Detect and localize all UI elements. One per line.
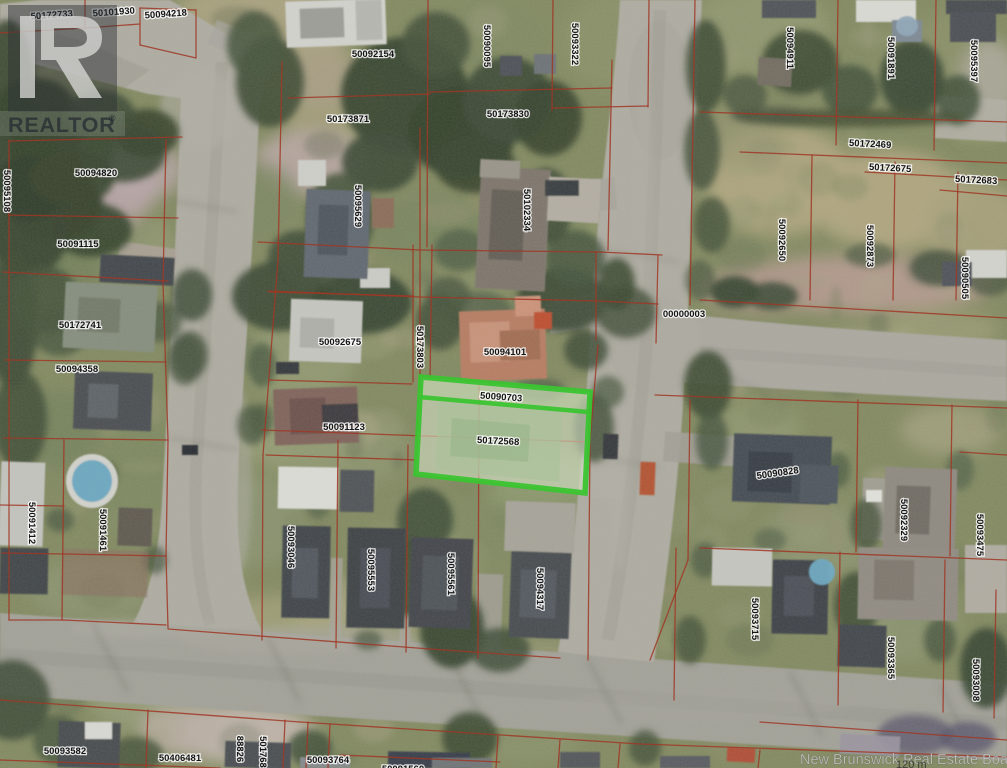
svg-text:50173830: 50173830: [487, 109, 529, 120]
svg-text:50091115: 50091115: [57, 239, 99, 250]
svg-text:50090095: 50090095: [481, 25, 492, 68]
svg-text:50093475: 50093475: [974, 514, 985, 557]
svg-text:50093008: 50093008: [970, 659, 981, 701]
svg-text:50094317: 50094317: [534, 568, 545, 610]
svg-text:00000003: 00000003: [663, 309, 705, 320]
svg-text:50172568: 50172568: [477, 435, 520, 448]
svg-text:50094911: 50094911: [784, 27, 795, 69]
svg-text:50095561: 50095561: [445, 553, 456, 596]
svg-text:50095108: 50095108: [1, 170, 12, 212]
svg-text:50091891: 50091891: [885, 37, 896, 80]
svg-text:50091560: 50091560: [382, 764, 424, 768]
svg-text:50173871: 50173871: [327, 114, 370, 125]
svg-text:501768: 501768: [257, 736, 268, 768]
svg-text:50094101: 50094101: [484, 347, 527, 358]
svg-text:120 m: 120 m: [896, 759, 927, 768]
svg-text:88826: 88826: [234, 736, 245, 762]
svg-text:50406481: 50406481: [159, 753, 202, 764]
svg-text:50092154: 50092154: [352, 49, 395, 60]
svg-text:50172741: 50172741: [59, 320, 102, 331]
svg-text:50172675: 50172675: [869, 162, 913, 175]
svg-text:50092873: 50092873: [864, 225, 875, 267]
svg-text:50092650: 50092650: [776, 219, 787, 261]
svg-text:50091461: 50091461: [97, 509, 108, 552]
svg-text:50093715: 50093715: [749, 598, 760, 641]
svg-text:50172683: 50172683: [955, 174, 998, 187]
svg-text:50095629: 50095629: [352, 185, 363, 227]
svg-text:50092675: 50092675: [319, 337, 362, 348]
svg-text:50095397: 50095397: [968, 40, 979, 82]
svg-text:50093365: 50093365: [885, 637, 896, 680]
svg-text:50102334: 50102334: [521, 189, 532, 232]
svg-text:50093046: 50093046: [285, 526, 296, 568]
svg-text:50095553: 50095553: [365, 549, 376, 591]
svg-text:50172469: 50172469: [849, 138, 892, 151]
svg-text:50090505: 50090505: [959, 257, 970, 300]
svg-text:50092329: 50092329: [898, 499, 909, 541]
svg-text:50173803: 50173803: [414, 326, 425, 368]
svg-text:50091412: 50091412: [26, 502, 37, 544]
svg-text:50094358: 50094358: [56, 364, 98, 375]
svg-text:50094820: 50094820: [75, 168, 117, 179]
svg-text:50093582: 50093582: [44, 746, 86, 757]
svg-text:50093322: 50093322: [569, 23, 580, 65]
svg-text:50093764: 50093764: [307, 755, 350, 766]
svg-text:50091123: 50091123: [323, 422, 365, 433]
svg-text:REALTOR: REALTOR: [8, 113, 116, 137]
svg-text:®: ®: [109, 113, 116, 123]
